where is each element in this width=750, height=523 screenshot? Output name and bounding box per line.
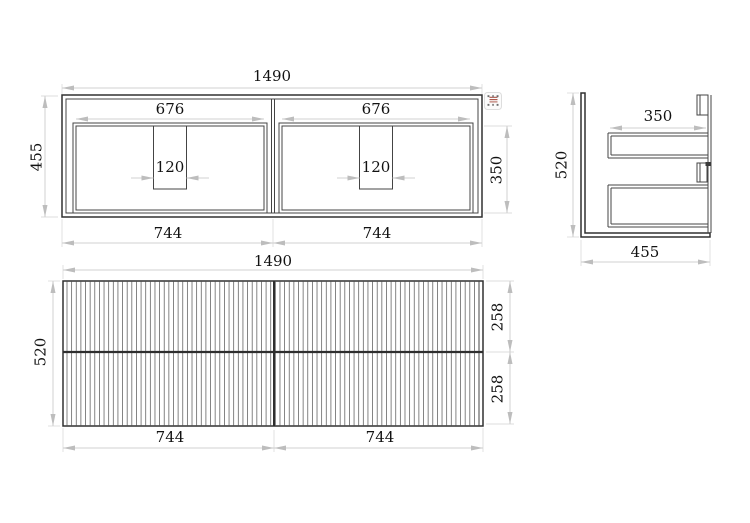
dim-front-overall-width: 1490: [63, 252, 483, 279]
svg-text:258: 258: [488, 375, 506, 404]
svg-text:455: 455: [27, 143, 45, 172]
dim-front-right-half: 744: [274, 428, 483, 452]
dim-plan-overall-width: 1490: [62, 67, 482, 94]
svg-text:676: 676: [362, 100, 391, 118]
svg-text:676: 676: [156, 100, 185, 118]
side-upper-drawer: [608, 133, 708, 158]
side-rail-clip: [706, 162, 712, 166]
dim-plan-left-notch: 120: [131, 158, 209, 178]
side-lower-drawer: [608, 185, 708, 227]
svg-text:744: 744: [154, 224, 183, 242]
side-top-rail: [697, 95, 708, 115]
flute-lines: [67, 282, 474, 425]
svg-text:1490: 1490: [254, 252, 292, 270]
svg-text:455: 455: [631, 243, 660, 261]
dim-side-depth: 455: [581, 240, 710, 266]
svg-text:258: 258: [488, 303, 506, 332]
dim-side-drawer-depth: 350: [610, 107, 706, 128]
front-view: 1490 520 744 744 258: [31, 252, 514, 452]
dim-plan-left-half: 744: [62, 219, 273, 247]
dim-plan-opening-depth: 350: [484, 126, 512, 213]
dim-side-height: 520: [552, 93, 579, 237]
dim-front-height: 520: [31, 281, 60, 426]
dim-front-left-half: 744: [63, 428, 274, 452]
dim-front-lower-drawer: 258: [486, 352, 514, 424]
dim-plan-right-opening: 676: [282, 100, 470, 119]
svg-text:744: 744: [156, 428, 185, 446]
svg-text:120: 120: [156, 158, 185, 176]
object-grip-icon: [485, 93, 502, 110]
dim-plan-right-half: 744: [273, 219, 482, 247]
technical-drawing-page: 1490 455 676 676 120 120: [0, 0, 750, 523]
dim-plan-left-opening: 676: [76, 100, 264, 119]
side-mid-rail: [697, 162, 711, 182]
drawing-svg: 1490 455 676 676 120 120: [0, 0, 750, 523]
dim-plan-overall-depth: 455: [27, 96, 58, 217]
plan-center-divider: [272, 99, 275, 213]
svg-text:744: 744: [363, 224, 392, 242]
plan-view: 1490 455 676 676 120 120: [27, 67, 512, 247]
svg-text:350: 350: [644, 107, 673, 125]
svg-text:120: 120: [362, 158, 391, 176]
dim-front-upper-drawer: 258: [486, 281, 514, 352]
side-view: 350 520 455: [552, 93, 711, 266]
svg-text:520: 520: [552, 151, 570, 180]
svg-text:350: 350: [487, 156, 505, 185]
svg-text:520: 520: [31, 338, 49, 367]
svg-text:1490: 1490: [253, 67, 291, 85]
svg-text:744: 744: [366, 428, 395, 446]
dim-plan-right-notch: 120: [337, 158, 415, 178]
